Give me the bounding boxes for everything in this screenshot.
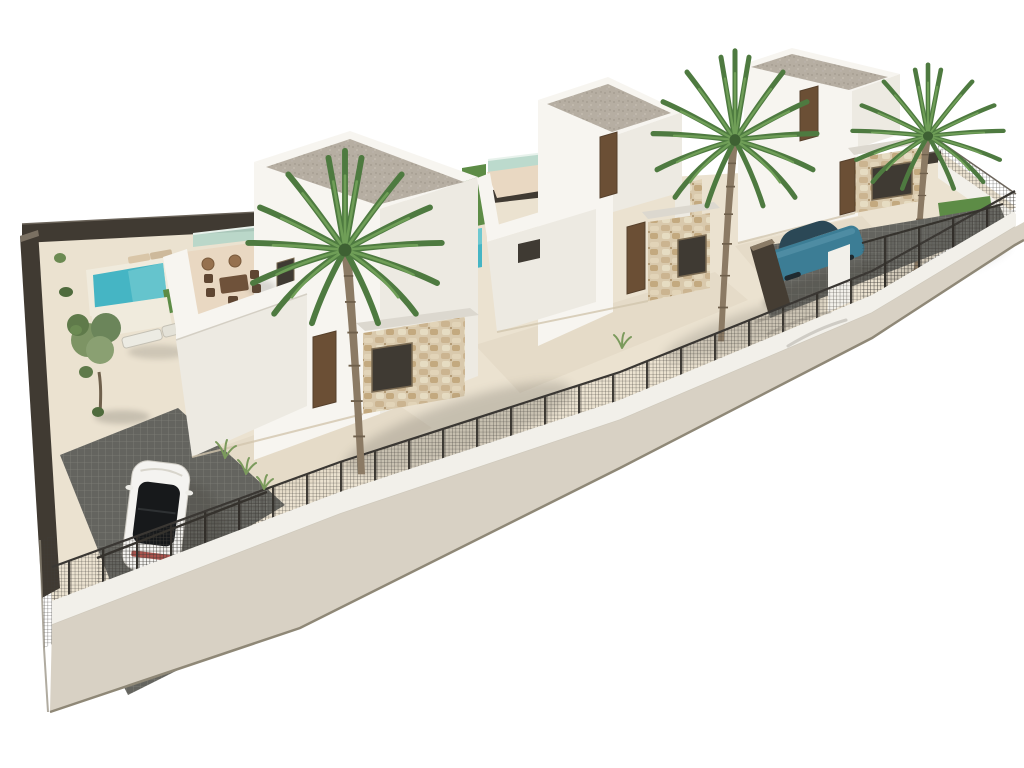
architectural-rendering bbox=[0, 0, 1024, 768]
rendering-canvas bbox=[0, 0, 1024, 768]
